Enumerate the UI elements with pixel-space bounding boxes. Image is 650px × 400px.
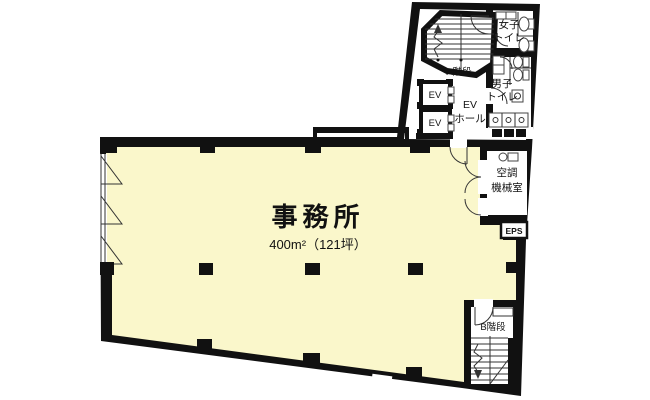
hvac-label-2: 機械室 [491,181,523,194]
ev-hall-label-1: EV [463,99,477,111]
office-label: 事務所 [271,202,364,232]
door-opening-hvac2 [478,198,488,216]
door-opening-stairsb [474,299,493,308]
hvac-fixture [499,153,518,161]
stairs-a-room [424,13,495,75]
office-area-label: 400m²（121坪） [269,237,367,252]
floor-plan: 事務所 400m²（121坪） A階段 B階段 女子 トイレ 男子 トイレ EV… [0,0,650,400]
mens-toilet-label-1: 男子 [492,78,513,90]
elevator-1-label: EV [429,90,442,101]
ev-hall-label-2: ホール [454,113,486,125]
mens-toilet-label-2: トイレ [486,91,518,103]
womens-toilet-label-2: トイレ [493,32,525,44]
womens-toilet-label-1: 女子 [499,18,520,31]
hvac-label-1: 空調 [497,166,518,179]
stairs-b-label: B階段 [480,321,506,333]
stairs-a-label: A階段 [446,66,472,78]
elevator-2-label: EV [429,118,442,129]
eps-label: EPS [505,226,522,236]
